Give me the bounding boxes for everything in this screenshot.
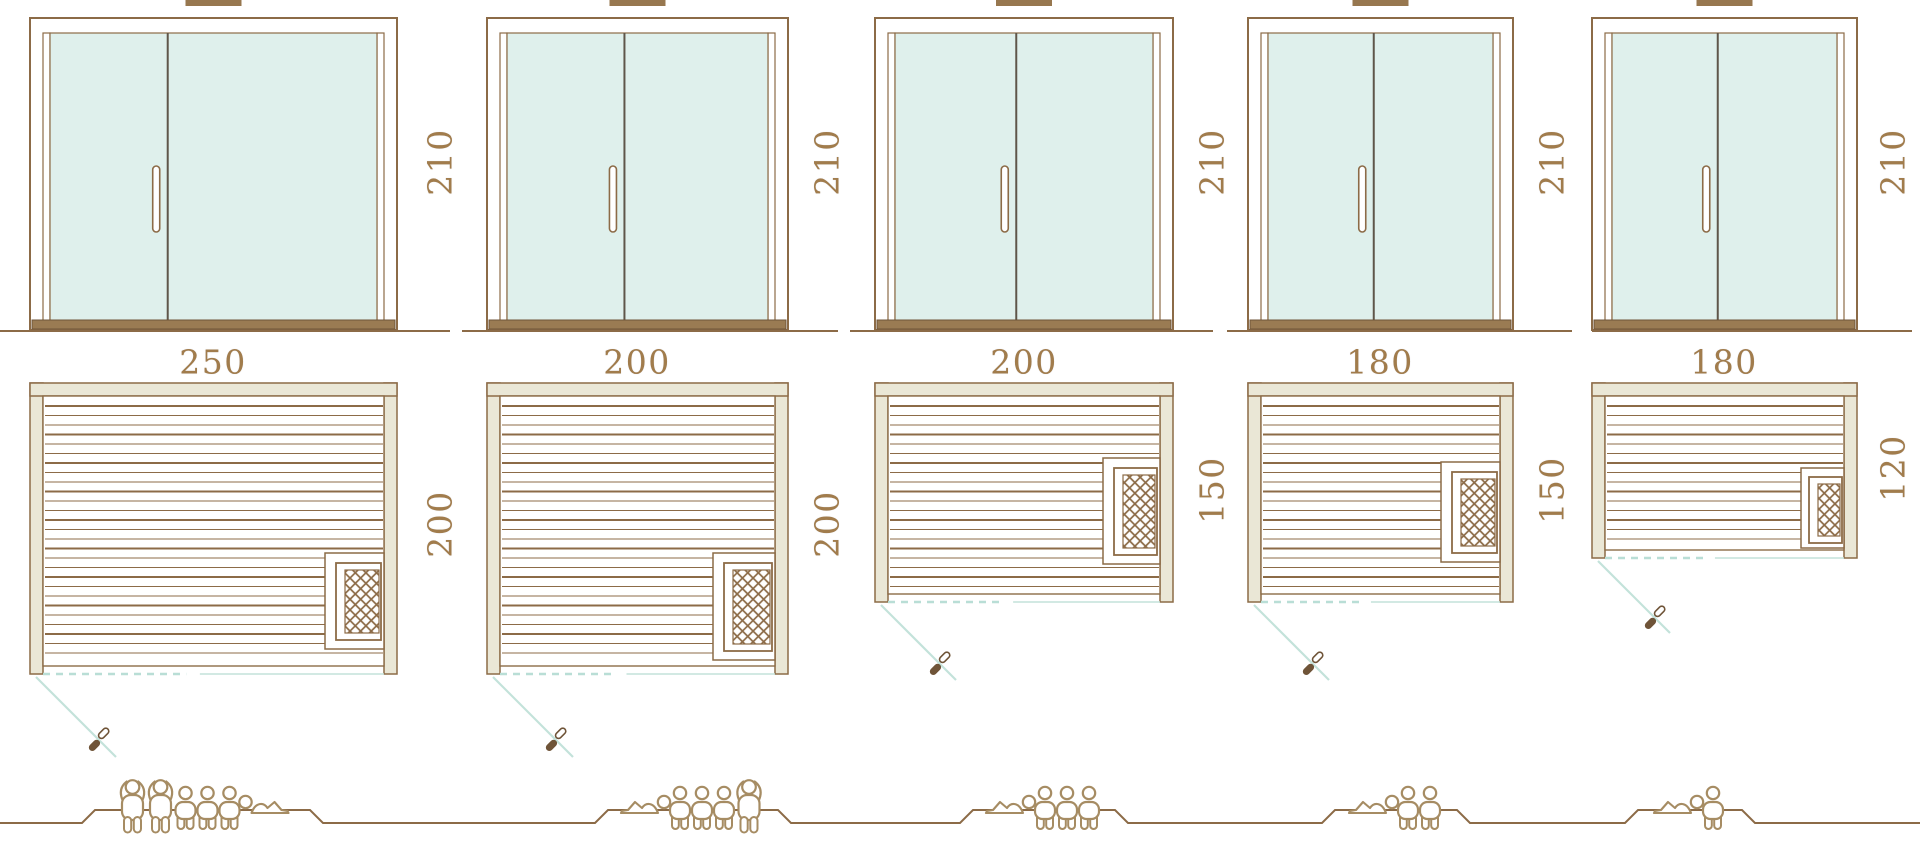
depth-dimension-label-4: 150 (1533, 456, 1572, 524)
width-dimension-label-2: 200 (603, 343, 671, 382)
door-swing-icon (1254, 605, 1329, 680)
people-group-2 (621, 780, 761, 832)
threshold (877, 320, 1171, 329)
people-group-5 (1654, 787, 1723, 829)
door-height-dimension-label-1: 210 (421, 128, 460, 196)
door-handle-icon (609, 166, 616, 232)
person-seated-icon (714, 787, 734, 829)
door-swing-icon (881, 605, 956, 680)
person-seated-icon (1420, 787, 1440, 829)
width-dimension-label-5: 180 (1690, 343, 1758, 382)
depth-dimension-label-1: 200 (421, 490, 460, 558)
width-dimension-label-1: 250 (179, 343, 247, 382)
roof-tab-icon (186, 0, 242, 6)
roof-tab-icon (996, 0, 1052, 6)
door-swing-icon (493, 677, 573, 757)
door-height-dimension-label-4: 210 (1533, 128, 1572, 196)
heater-icon (1818, 484, 1840, 536)
door-height-dimension-label-3: 210 (1193, 128, 1232, 196)
person-seated-icon (1079, 787, 1099, 829)
door-elevation-1 (30, 0, 397, 330)
door-elevation-5 (1592, 0, 1857, 330)
person-seated-icon (1398, 787, 1418, 829)
heater-icon (1461, 479, 1495, 546)
door-swing-icon (36, 677, 116, 757)
sauna-size-diagram: 250 200 200 180 180 210 210 210 210 210 … (0, 0, 1920, 856)
threshold (489, 320, 786, 329)
person-seated-icon (1035, 787, 1055, 829)
depth-dimension-label-5: 120 (1874, 434, 1913, 502)
heater-icon (345, 570, 379, 633)
threshold (1250, 320, 1511, 329)
width-dimension-label-3: 200 (990, 343, 1058, 382)
roof-tab-icon (1353, 0, 1409, 6)
person-seated-icon (198, 787, 218, 829)
roof-tab-icon (1697, 0, 1753, 6)
person-standing-icon (737, 780, 760, 832)
depth-dimension-label-3: 150 (1193, 456, 1232, 524)
person-standing-icon (149, 780, 172, 832)
glass-panel (895, 33, 1153, 321)
threshold (1594, 320, 1855, 329)
door-height-dimension-label-5: 210 (1874, 128, 1913, 196)
person-seated-icon (176, 787, 196, 829)
person-seated-icon (220, 787, 240, 829)
threshold (32, 320, 395, 329)
door-elevation-3 (875, 0, 1173, 330)
glass-panel (507, 33, 768, 321)
width-dimension-label-4: 180 (1346, 343, 1414, 382)
floor-plan-1 (30, 383, 397, 757)
door-elevation-2 (487, 0, 788, 330)
glass-panel (50, 33, 377, 321)
door-handle-icon (1703, 166, 1710, 232)
person-seated-icon (1057, 787, 1077, 829)
door-handle-icon (1001, 166, 1008, 232)
sauna-drawing-canvas (0, 0, 1920, 856)
floor-plan-5 (1592, 383, 1857, 633)
door-height-dimension-label-2: 210 (808, 128, 847, 196)
person-standing-icon (121, 780, 144, 832)
person-seated-icon (1703, 787, 1723, 829)
roof-tab-icon (610, 0, 666, 6)
heater-icon (733, 570, 770, 644)
glass-panel (1612, 33, 1837, 321)
people-group-4 (1349, 787, 1440, 829)
person-seated-icon (692, 787, 712, 829)
heater-icon (1123, 475, 1155, 548)
floor-plan-2 (487, 383, 788, 757)
people-group-1 (121, 780, 289, 832)
floor-plan-4 (1248, 383, 1513, 680)
door-elevation-4 (1248, 0, 1513, 330)
glass-panel (1268, 33, 1493, 321)
door-swing-icon (1598, 561, 1670, 633)
people-group-3 (986, 787, 1099, 829)
door-handle-icon (1359, 166, 1366, 232)
person-seated-icon (670, 787, 690, 829)
floor-plan-3 (875, 383, 1173, 680)
door-handle-icon (153, 166, 160, 232)
depth-dimension-label-2: 200 (808, 490, 847, 558)
